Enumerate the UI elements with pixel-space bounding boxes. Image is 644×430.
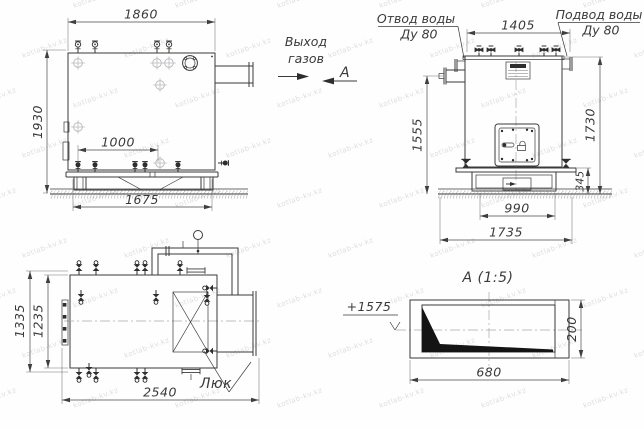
hinge-strip bbox=[62, 300, 68, 345]
dim-side-overall-width: 1860 bbox=[124, 7, 158, 22]
foot-icon bbox=[561, 159, 570, 168]
valve-icon bbox=[78, 290, 85, 304]
valve-icon bbox=[540, 46, 549, 56]
dim-front-base-width: 990 bbox=[504, 201, 529, 216]
water-inlet-stub bbox=[562, 57, 572, 71]
valve-icon bbox=[203, 285, 217, 292]
top-band bbox=[463, 56, 564, 60]
water-outlet-callout: Отвод воды Ду 80 bbox=[377, 11, 464, 58]
gauge-icon bbox=[194, 231, 203, 240]
dim-plan-overall-depth: 1335 bbox=[12, 304, 27, 338]
elevation-mark: +1575 bbox=[343, 299, 400, 330]
valve-icon bbox=[475, 46, 484, 56]
side-view: 1860 1930 1000 1675 bbox=[30, 7, 253, 212]
center-mark-icon bbox=[71, 120, 85, 134]
water-outlet-label-line1: Отвод воды bbox=[377, 11, 455, 26]
flange-icon bbox=[183, 56, 198, 71]
dim-side-base-length: 1675 bbox=[125, 192, 159, 207]
flow-arrow-icon bbox=[278, 73, 309, 80]
skid-base bbox=[66, 172, 218, 190]
valve-icon bbox=[93, 261, 100, 275]
plan-view: 1335 1235 2540 Люк bbox=[12, 231, 262, 405]
water-inlet-callout: Подвод воды Ду 80 bbox=[556, 7, 643, 56]
gas-duct-side bbox=[215, 62, 253, 87]
valve-icon bbox=[93, 368, 100, 382]
valve-icon bbox=[166, 41, 172, 53]
hatch-callout: Люк bbox=[199, 351, 251, 392]
center-mark-icon bbox=[153, 156, 167, 170]
dim-front-top-width: 1405 bbox=[501, 18, 535, 33]
center-mark-icon bbox=[153, 78, 167, 92]
valve-icon bbox=[552, 46, 561, 56]
boiler-drawing-page: kotlab-kv.kzkotlab-kv.kzkotlab-kv.kzkotl… bbox=[0, 0, 644, 430]
gas-outlet-label-line1: Выход bbox=[285, 34, 327, 49]
damper-wedge bbox=[422, 307, 553, 352]
valve-icon bbox=[218, 160, 228, 166]
valve-icon bbox=[134, 261, 141, 275]
dim-front-base-height: 345 bbox=[575, 171, 587, 192]
valve-icon bbox=[177, 261, 184, 275]
dim-plan-overall-length: 2540 bbox=[143, 385, 177, 400]
valve-icon bbox=[142, 368, 149, 382]
gas-duct-plan bbox=[217, 291, 256, 356]
furnace-door bbox=[495, 124, 539, 166]
vent-dot bbox=[211, 56, 213, 58]
dim-side-overall-height: 1930 bbox=[30, 105, 45, 139]
dim-section-duct-height: 200 bbox=[564, 316, 579, 341]
dim-front-overall-width: 1735 bbox=[489, 225, 523, 240]
hatch-label: Люк bbox=[199, 376, 232, 392]
front-view: Отвод воды Ду 80 Подвод воды Ду 80 1405 … bbox=[377, 7, 643, 244]
flange-icon bbox=[182, 368, 200, 374]
pipe-loop bbox=[152, 231, 238, 296]
valve-icon bbox=[203, 348, 217, 355]
water-outlet-label-line2: Ду 80 bbox=[399, 27, 437, 42]
dim-plan-body-depth: 1235 bbox=[31, 304, 46, 338]
water-inlet-label-line2: Ду 80 bbox=[581, 23, 619, 38]
boiler-body-plan bbox=[70, 275, 217, 368]
valve-icon bbox=[153, 290, 160, 304]
hatch-opening bbox=[173, 292, 208, 352]
valve-icon bbox=[487, 46, 496, 56]
valve-icon bbox=[76, 368, 83, 382]
dim-section-duct-width: 680 bbox=[476, 365, 501, 380]
valve-icon bbox=[92, 41, 98, 53]
water-inlet-label-line1: Подвод воды bbox=[556, 7, 643, 22]
valve-icon bbox=[75, 41, 81, 53]
valve-icon bbox=[515, 46, 524, 56]
flange-icon bbox=[187, 267, 205, 273]
boiler-body-side bbox=[68, 53, 215, 170]
drawing-canvas: 1860 1930 1000 1675 Выход газов bbox=[0, 0, 644, 430]
valve-icon bbox=[76, 261, 83, 275]
valve-icon bbox=[134, 368, 141, 382]
dim-side-valve-spacing: 1000 bbox=[101, 135, 135, 150]
center-mark-icon bbox=[71, 56, 85, 70]
center-mark-icon bbox=[150, 56, 164, 70]
section-arrow-label: А bbox=[339, 65, 350, 81]
valve-icon bbox=[154, 41, 160, 53]
section-view: А (1:5) +1575 680 200 bbox=[343, 270, 585, 384]
elevation-label: +1575 bbox=[347, 299, 392, 314]
nameplate bbox=[506, 62, 530, 79]
gas-outlet-annotation: Выход газов А bbox=[278, 34, 357, 84]
valve-icon bbox=[86, 363, 93, 377]
dim-front-outlet-height: 1555 bbox=[410, 118, 425, 152]
gas-outlet-label-line2: газов bbox=[288, 51, 324, 66]
boiler-body-front bbox=[465, 56, 562, 167]
valve-icon bbox=[142, 261, 149, 275]
section-title: А (1:5) bbox=[462, 270, 514, 286]
door-latch-icon bbox=[518, 141, 526, 150]
dim-front-overall-height: 1730 bbox=[583, 108, 598, 142]
center-mark-icon bbox=[162, 56, 176, 70]
